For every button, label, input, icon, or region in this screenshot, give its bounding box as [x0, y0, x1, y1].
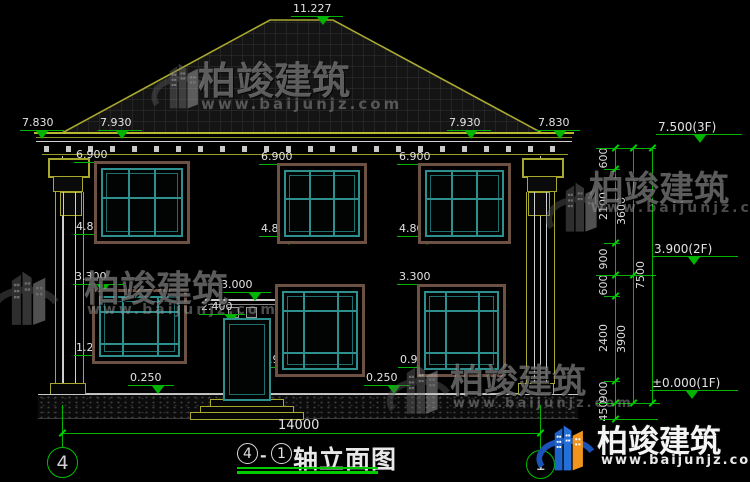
window-transom	[284, 310, 356, 312]
elevation-triangle-icon	[694, 135, 706, 149]
elevation-line	[199, 314, 245, 315]
window-transom	[103, 197, 181, 199]
dimension-extension-line	[596, 275, 656, 276]
dimension-extension-line	[604, 296, 620, 297]
cad-canvas: 11.2277.8307.9307.9307.8306.9006.9006.90…	[0, 0, 750, 482]
window-transom	[286, 198, 358, 200]
elevation-marker: ±0.000(1F)	[650, 377, 738, 401]
pilaster-neck-right	[527, 176, 557, 192]
elevation-triangle-icon	[36, 131, 48, 145]
window-mullion	[333, 172, 335, 235]
elevation-triangle-icon	[152, 386, 164, 400]
elevation-triangle-icon	[688, 257, 700, 271]
elevation-label: 7.830	[22, 116, 54, 129]
window-1f	[424, 291, 499, 370]
dimension-extension-line	[62, 433, 540, 434]
pilaster-shaft-right	[526, 192, 555, 384]
elevation-label: 3.300	[399, 270, 431, 283]
elevation-label: 0.250	[366, 371, 398, 384]
canopy-bracket	[246, 307, 257, 318]
dimension-extension-line	[596, 148, 656, 149]
axis-bubble-1: 1	[526, 450, 555, 479]
elevation-marker: 3.900(2F)	[652, 243, 738, 267]
elevation-triangle-icon	[116, 131, 128, 145]
elevation-triangle-icon	[388, 386, 400, 400]
window-1f	[282, 291, 358, 370]
entry-door	[223, 318, 271, 401]
elevation-label: 6.900	[399, 150, 431, 163]
elevation-marker: 7.830	[20, 117, 64, 141]
elevation-label: 7.500(3F)	[658, 120, 716, 134]
span-dimension: 14000	[278, 418, 319, 433]
elevation-marker: 7.930	[447, 117, 491, 141]
elevation-marker: 0.250	[364, 372, 410, 396]
title-underline-thick	[237, 471, 378, 474]
elevation-marker: 7.500(3F)	[656, 121, 742, 145]
axis-bubble-4: 4	[47, 447, 78, 478]
window-transom	[101, 311, 178, 313]
elevation-label: 11.227	[293, 2, 332, 15]
elevation-line	[128, 385, 174, 386]
title-axis-end-bubble: 1	[271, 443, 292, 464]
elevation-marker: 7.930	[98, 117, 142, 141]
elevation-marker: 0.250	[128, 372, 174, 396]
dimension-extension-line	[604, 243, 620, 244]
elevation-label: 3.000	[221, 278, 253, 291]
dimension-value: 3900	[616, 317, 628, 361]
dimension-value: 600	[598, 263, 610, 307]
dimension-value: 2100	[598, 184, 610, 228]
elevation-line	[364, 385, 410, 386]
window-1f	[99, 296, 180, 357]
window-mullion	[154, 170, 156, 235]
window-mullion	[157, 298, 159, 355]
elevation-label: 2.400	[201, 300, 233, 313]
window-2f	[425, 170, 504, 237]
elevation-label: 7.830	[538, 116, 570, 129]
window-mullion	[303, 293, 305, 368]
window-mullion	[309, 172, 311, 235]
elevation-label: 6.900	[261, 150, 293, 163]
dimension-value: 450	[598, 389, 610, 433]
elevation-label: ±0.000(1F)	[652, 376, 720, 390]
title-underline	[237, 467, 378, 469]
window-mullion	[451, 172, 453, 235]
elevation-line	[219, 292, 271, 293]
elevation-label: 7.930	[449, 116, 481, 129]
title-axis-start-bubble: 4	[237, 443, 258, 464]
elevation-triangle-icon	[317, 17, 329, 31]
elevation-marker: 11.227	[291, 3, 343, 27]
elevation-label: 6.900	[76, 148, 108, 161]
title-dash: -	[260, 446, 267, 465]
dimension-extension-line	[600, 419, 658, 420]
pilaster-neck-left	[53, 176, 83, 192]
dimension-extension-line	[604, 169, 620, 170]
window-2f	[101, 168, 183, 237]
window-transom	[284, 352, 356, 354]
window-transom	[426, 310, 497, 312]
elevation-triangle-icon	[465, 131, 477, 145]
window-transom	[426, 352, 497, 354]
elevation-label: 7.930	[100, 116, 132, 129]
elevation-triangle-icon	[686, 391, 698, 405]
dimension-extension-line	[604, 381, 620, 382]
window-transom	[427, 198, 502, 200]
window-mullion	[445, 293, 447, 368]
elevation-marker: 7.830	[536, 117, 580, 141]
window-2f	[284, 170, 360, 237]
dimension-value: 3600	[616, 189, 628, 233]
window-mullion	[122, 298, 124, 355]
window-mullion	[128, 170, 130, 235]
dimension-extension-line	[596, 403, 660, 404]
elevation-label: 0.250	[130, 371, 162, 384]
axis-leader-line	[62, 405, 63, 447]
pilaster-capital-right	[522, 158, 564, 178]
window-mullion	[337, 293, 339, 368]
elevation-triangle-icon	[554, 131, 566, 145]
elevation-label: 3.300	[75, 270, 107, 283]
dimension-value: 2400	[598, 316, 610, 360]
elevation-triangle-icon	[249, 293, 261, 307]
stone-plinth	[38, 394, 578, 419]
axis-leader-line	[540, 405, 541, 450]
dimension-value: 600	[598, 136, 610, 180]
window-transom	[101, 343, 178, 345]
window-mullion	[476, 172, 478, 235]
window-mullion	[478, 293, 480, 368]
elevation-label: 3.900(2F)	[654, 242, 712, 256]
